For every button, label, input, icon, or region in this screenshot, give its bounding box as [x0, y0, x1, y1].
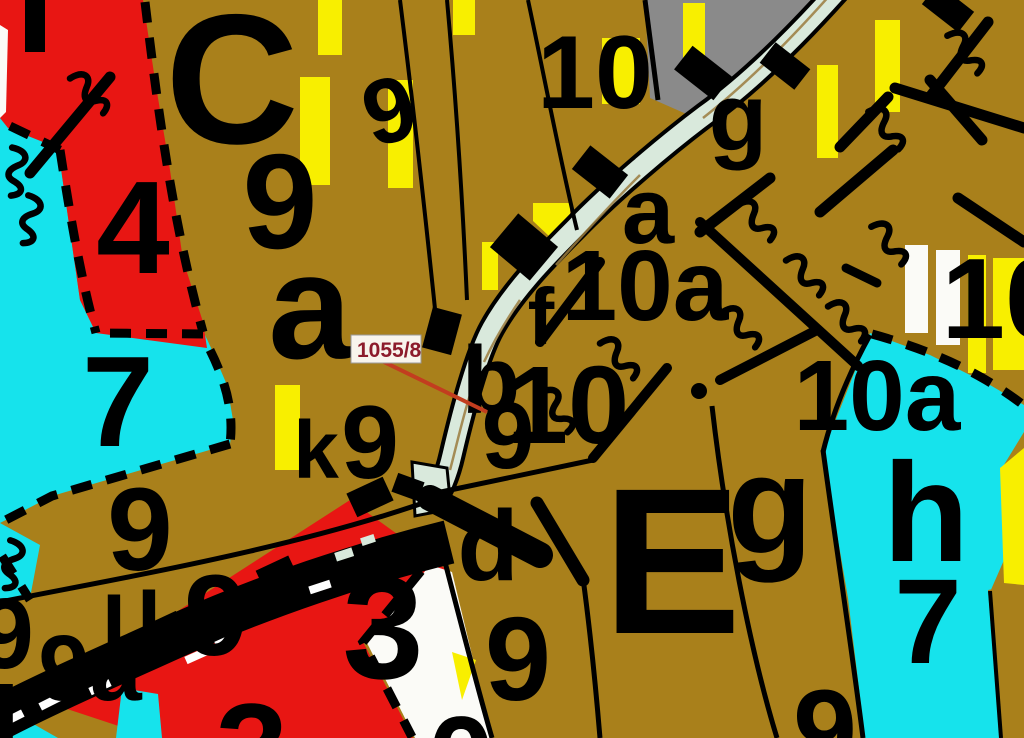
map-label-9: 9: [793, 667, 857, 738]
map-label-9a: 9a: [38, 616, 143, 720]
map-label-3: 3: [216, 676, 288, 738]
boundary-dot: [691, 383, 707, 399]
map-label-l: l: [136, 575, 161, 675]
map-label-3: 3: [342, 546, 423, 709]
yellow-bar: [453, 0, 475, 35]
map-label-g: g: [709, 64, 768, 171]
map-label-l: l: [101, 580, 126, 680]
map-label-9: 9: [184, 552, 248, 680]
map-label-d: d: [0, 666, 20, 738]
map-label-k: k: [293, 405, 339, 496]
map-label-7: 7: [82, 330, 154, 474]
map-label-7: 7: [894, 553, 961, 689]
yellow-bar: [318, 0, 342, 55]
map-label-9: 9: [485, 593, 551, 726]
map-canvas[interactable]: C9ak9910ga10afb10910a1047999all9330d9Eg9…: [0, 0, 1024, 738]
glyph-bar-top-left: [25, 0, 45, 52]
map-label-E: E: [603, 446, 742, 678]
yellow-bar: [817, 65, 838, 158]
parcel-annotation-label: 1055/8: [357, 339, 422, 362]
map-label-10: 10: [942, 236, 1024, 363]
map-label-a: a: [268, 222, 353, 390]
map-label-9: 9: [341, 385, 399, 501]
map-label-d: d: [457, 490, 518, 602]
map-label-10a: 10a: [562, 230, 730, 342]
map-label-g: g: [727, 426, 813, 583]
map-label-9: 9: [482, 383, 535, 489]
yellow-wedge-right: [1000, 448, 1024, 585]
map-label-10: 10: [537, 15, 653, 131]
map-label-4: 4: [96, 154, 169, 301]
map-viewport: C9ak9910ga10afb10910a1047999all9330d9Eg9…: [0, 0, 1024, 738]
